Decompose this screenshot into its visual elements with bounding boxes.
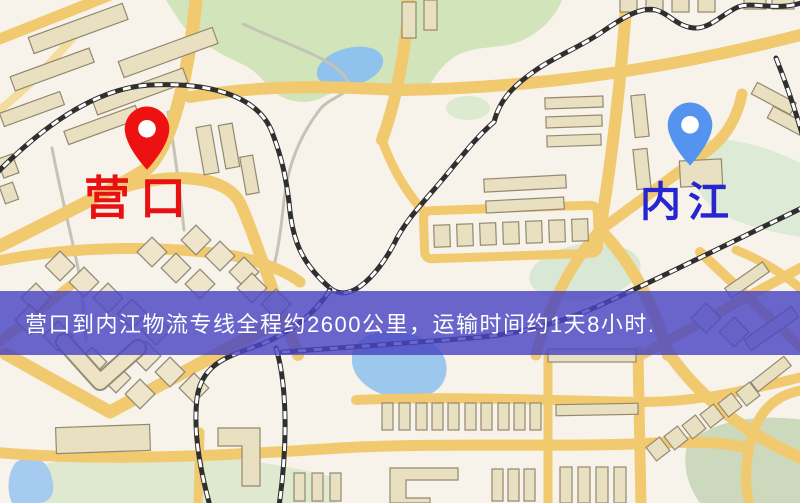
blue-map-pin-icon[interactable]: [664, 100, 716, 170]
blue-pin-body: [668, 103, 713, 166]
red-pin-hole: [138, 120, 156, 138]
red-map-pin-icon[interactable]: [121, 104, 173, 174]
map-canvas[interactable]: [0, 0, 800, 503]
route-info-text: 营口到内江物流专线全程约2600公里，运输时间约1天8小时.: [25, 307, 656, 339]
origin-city-label: 营口: [84, 176, 196, 222]
destination-city-label: 内江: [640, 182, 736, 223]
red-pin-body: [125, 107, 170, 170]
route-info-banner: 营口到内江物流专线全程约2600公里，运输时间约1天8小时.: [0, 291, 800, 355]
blue-pin-hole: [681, 116, 699, 134]
map-view: 营口 内江 营口到内江物流专线全程约2600公里，运输时间约1天8小时.: [0, 0, 800, 503]
